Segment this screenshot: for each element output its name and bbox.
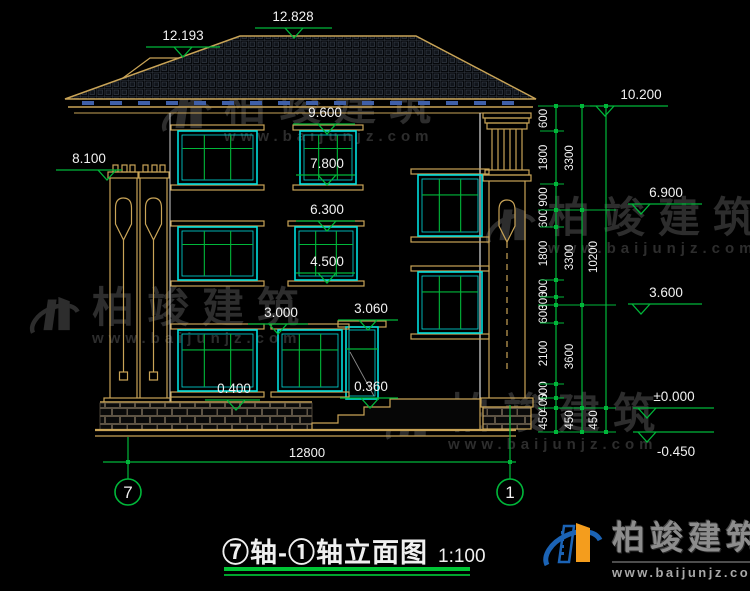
window-lintel [171, 125, 264, 130]
dimension-value: 400 [538, 393, 550, 412]
eave-tie [474, 101, 486, 105]
window-inner-frame [182, 334, 253, 387]
window-lintel [171, 324, 264, 329]
window-lintel [171, 221, 264, 226]
dimension-value: 1800 [538, 145, 550, 171]
dimension-value: 2100 [538, 341, 550, 367]
window-inner-frame [422, 276, 478, 329]
elevation-label-porch_top: 8.100 [72, 151, 106, 166]
eave-tie [110, 101, 122, 105]
eave-tie [362, 101, 374, 105]
window-inner-frame [282, 334, 338, 387]
eave-tie [390, 101, 402, 105]
eave-tie [194, 101, 206, 105]
window-inner-frame [182, 231, 253, 276]
elevation-label-ground: ±0.000 [653, 389, 694, 404]
window-sill [271, 392, 349, 397]
roof [65, 36, 536, 113]
drawing-title-text: ⑦轴-①轴立面图 [222, 538, 428, 568]
eave-tie [82, 101, 94, 105]
brand-logo-icon [540, 513, 604, 579]
eave-tie [222, 101, 234, 105]
axis-number-left: 7 [123, 483, 132, 502]
dimension-value: 450 [588, 410, 600, 429]
window-frame [418, 175, 482, 236]
dimension-value: 900 [538, 187, 550, 206]
window-frame [418, 272, 482, 333]
overall-width-dimension: 12800 [289, 445, 325, 460]
title-underline [224, 567, 470, 571]
elevation-label-stair_upper: 6.900 [649, 185, 683, 200]
drawing-scale: 1:100 [438, 546, 486, 567]
eave-tie [502, 101, 514, 105]
axis-number-right: 1 [505, 483, 514, 502]
elevation-mark-triangle-stair_upper [632, 204, 650, 214]
elevation-label-w1_top: 3.000 [264, 305, 298, 320]
elevation-label-w3_sill: 7.800 [310, 156, 344, 171]
window-sill [411, 237, 489, 242]
eave-tie [278, 101, 290, 105]
elevation-label-eave: 10.200 [620, 87, 661, 102]
elevation-mark-triangle-ground [638, 408, 656, 418]
window-lintel [288, 221, 364, 226]
elevation-label-site: -0.450 [657, 444, 695, 459]
dimension-value: 10200 [588, 241, 600, 273]
elevation-label-ridge_secondary: 12.193 [162, 28, 203, 43]
brand-logo: 柏竣建筑 www.baijunjz.com [540, 511, 750, 580]
dimension-value: 3300 [564, 245, 576, 271]
window-sill [171, 185, 264, 190]
dimension-value: 600 [538, 109, 550, 128]
window-lintel [411, 266, 489, 271]
dimension-value: 450 [564, 410, 576, 429]
elevation-label-w3_top: 9.600 [308, 105, 342, 120]
window-inner-frame [182, 135, 253, 180]
dimension-value: 450 [538, 410, 550, 429]
window-lintel [293, 125, 363, 130]
window-frame [178, 131, 257, 184]
dimension-value: 600 [538, 304, 550, 323]
elevation-label-door_sill: 0.360 [354, 379, 388, 394]
window-frame [278, 330, 342, 391]
plinth-and-steps [95, 399, 516, 436]
window-sill [171, 281, 264, 286]
title-underline-thin [224, 574, 470, 576]
eave-tie [138, 101, 150, 105]
dimension-value: 3300 [564, 145, 576, 171]
dimension-value: 3600 [564, 344, 576, 370]
brand-site: www.baijunjz.com [612, 561, 750, 580]
elevation-mark-triangle-site [638, 432, 656, 442]
eave-tie [446, 101, 458, 105]
eave-tie [166, 101, 178, 105]
window-sill [293, 185, 363, 190]
elevation-mark-triangle-floor2 [632, 304, 650, 314]
window-frame [178, 227, 257, 280]
eave-tie [250, 101, 262, 105]
elevation-label-door_top: 3.060 [354, 301, 388, 316]
elevation-label-w2_top: 6.300 [310, 202, 344, 217]
dimension-value: 1800 [538, 241, 550, 267]
cad-drawing-canvas: 柏竣建筑 www.baijunjz.com 柏竣建筑 www.baijunjz.… [0, 0, 750, 591]
window-lintel [411, 169, 489, 174]
entry-steps [312, 399, 480, 430]
eave-tie [418, 101, 430, 105]
window-inner-frame [422, 179, 478, 232]
elevation-drawing: 12800 7 1 12.82812.19310.2008.1009.6007.… [0, 0, 750, 591]
dimension-value: 600 [538, 209, 550, 228]
elevation-label-ridge_main: 12.828 [272, 9, 313, 24]
drawing-title: ⑦轴-①轴立面图1:100 [222, 531, 486, 570]
elevation-label-plinth_top: 0.400 [217, 381, 251, 396]
elevation-label-w2_sill: 4.500 [310, 254, 344, 269]
left-pillars [104, 165, 171, 429]
brand-name: 柏竣建筑 [612, 511, 750, 559]
elevation-label-floor2: 3.600 [649, 285, 683, 300]
window-sill [411, 334, 489, 339]
